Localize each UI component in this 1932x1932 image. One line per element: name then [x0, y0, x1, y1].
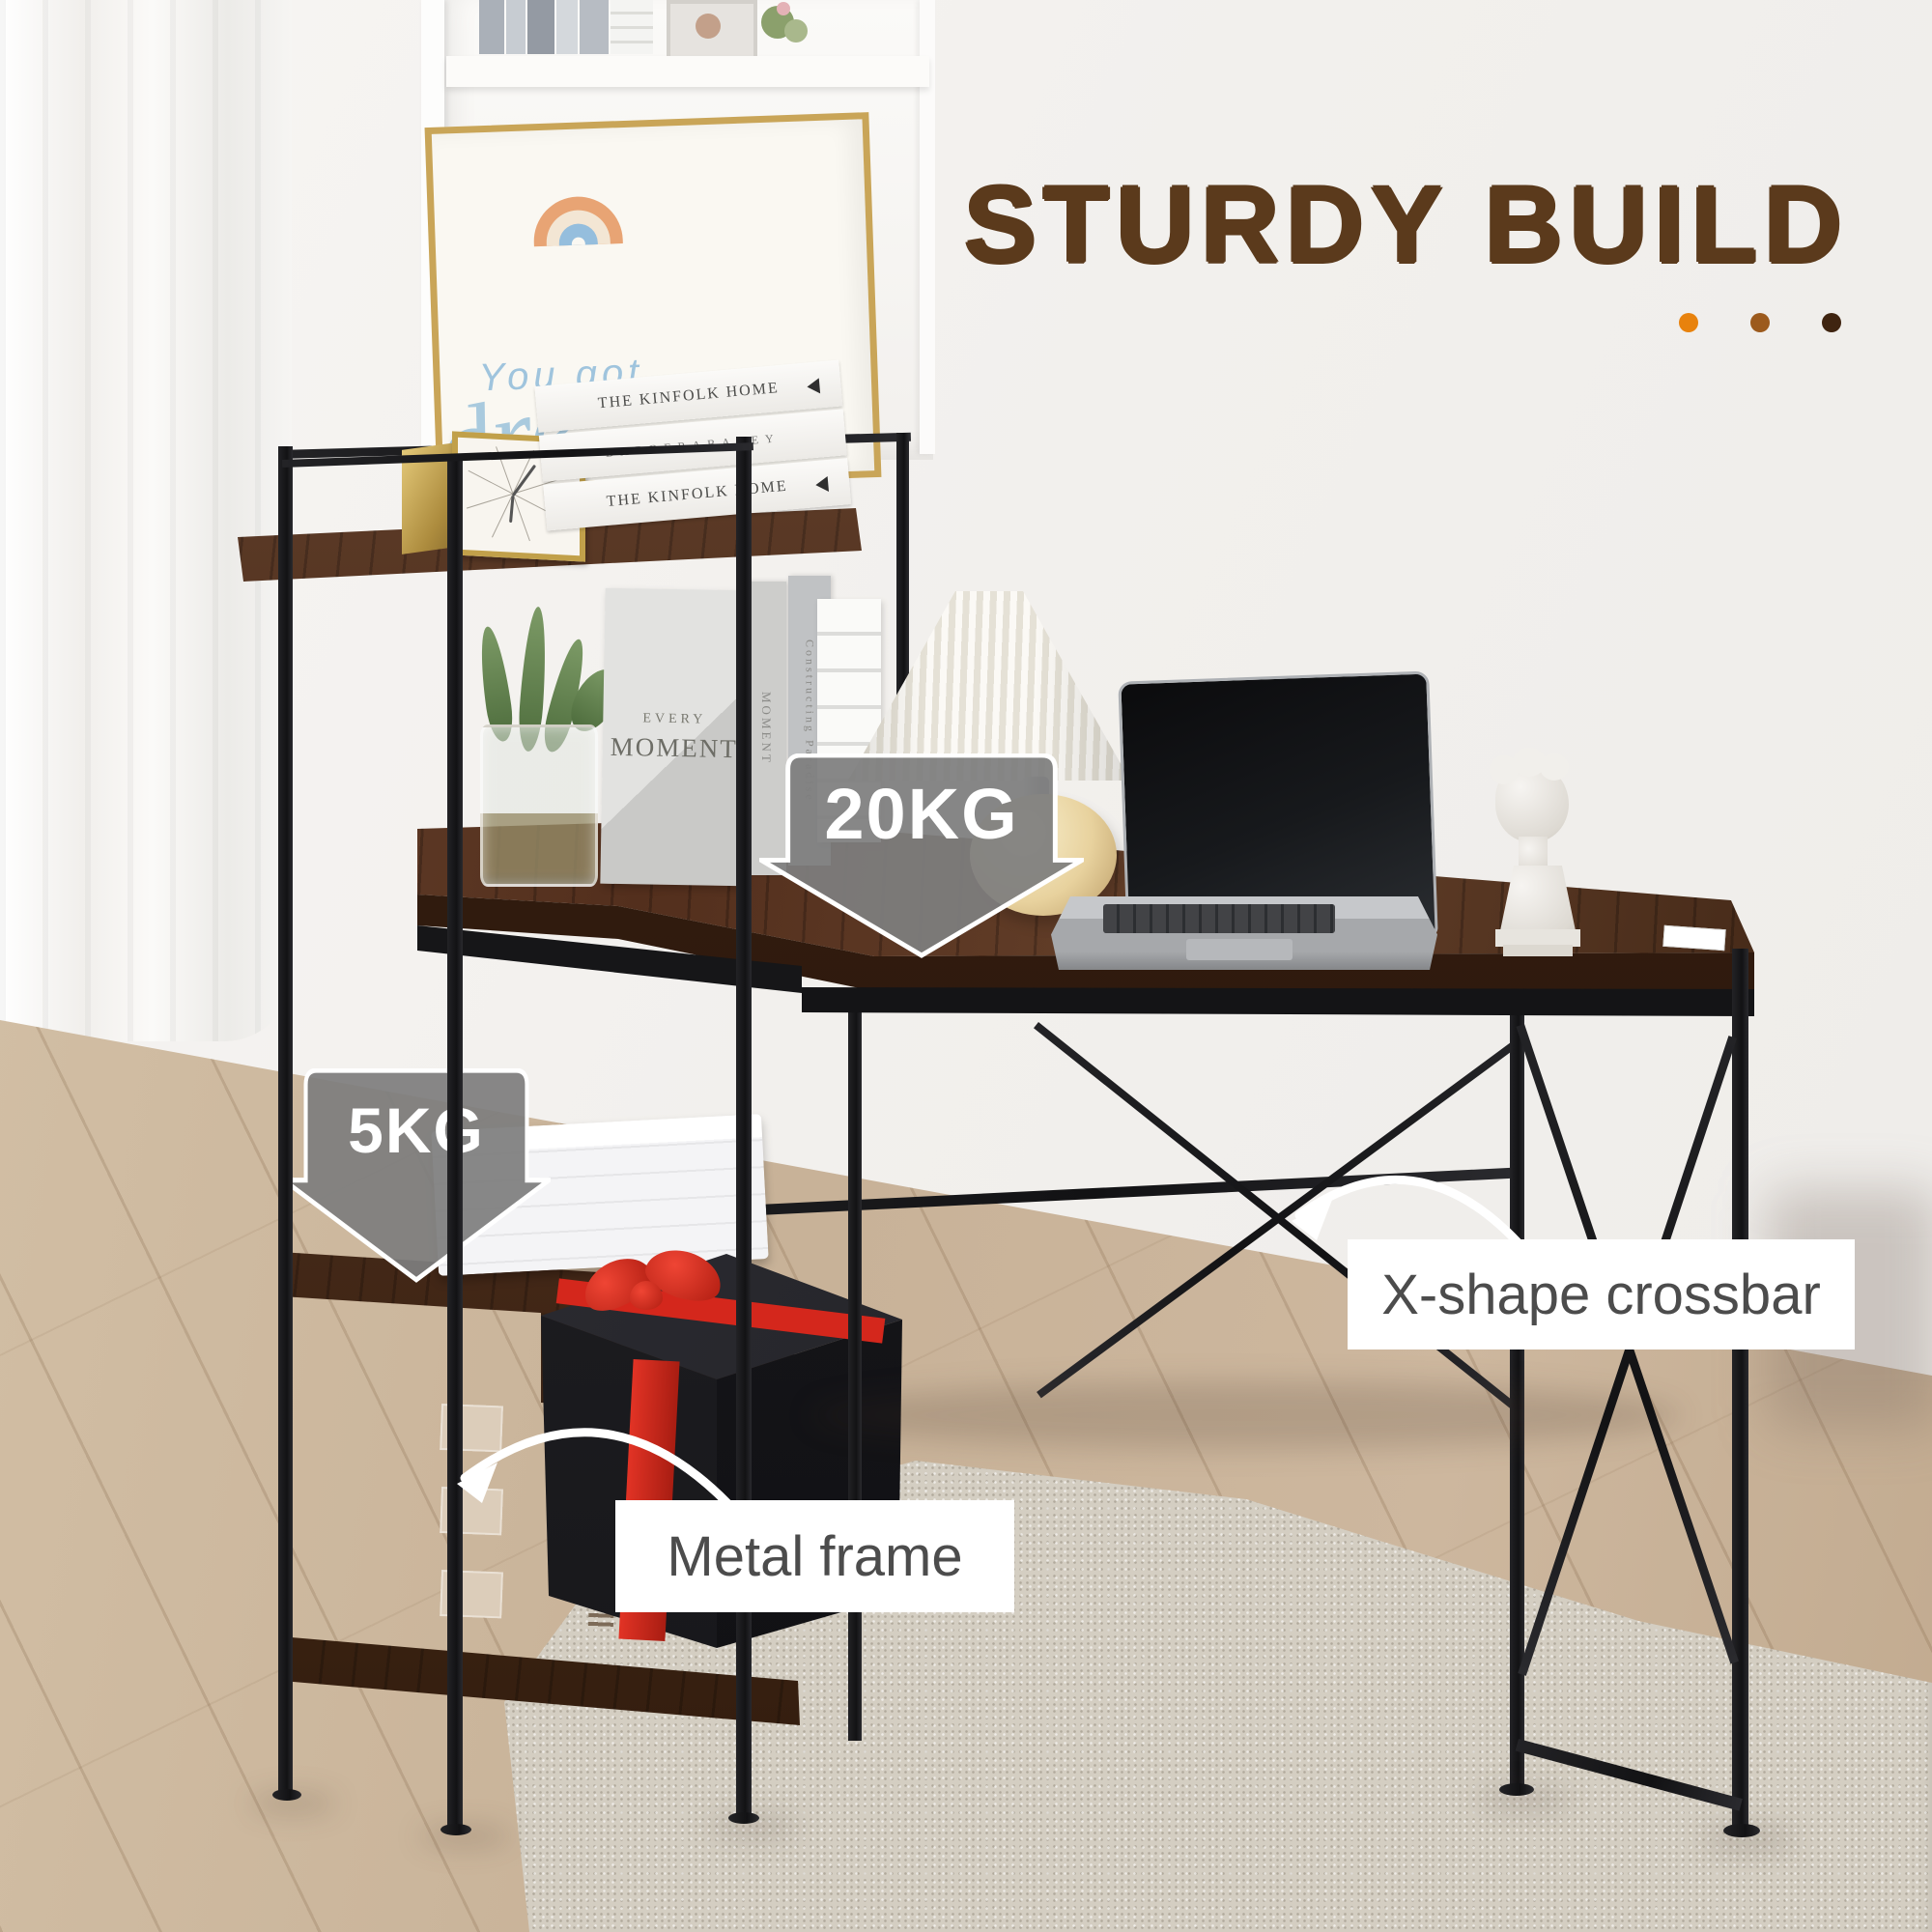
niche-book-spine: [479, 0, 504, 54]
desk-edge-sticker: [1662, 925, 1725, 951]
desk-front-right-leg: [1732, 949, 1748, 1830]
shelf-rear-right-post-lower: [848, 1005, 862, 1741]
niche-book-spine: [556, 0, 578, 54]
niche-plant-icon: [784, 19, 808, 43]
niche-book-spine: [506, 0, 526, 54]
accent-dot-icon: [1822, 313, 1841, 332]
shelf-capacity-value: 5KG: [282, 1094, 551, 1167]
book-title: THE KINFOLK HOME: [606, 478, 788, 511]
niche-flower-icon: [777, 2, 790, 15]
adjustable-foot: [1499, 1783, 1534, 1796]
laptop-keyboard-base: [1051, 896, 1437, 970]
crossbar-callout-label: X-shape crossbar: [1348, 1239, 1855, 1350]
decor-book-cover: EVERY MOMENT: [600, 588, 748, 887]
niche-book-spine: [580, 0, 609, 54]
accent-dot-icon: [1679, 313, 1698, 332]
product-feature-image: You got dre THE KINFO: [0, 0, 1932, 1932]
desk-capacity-value: 20KG: [759, 773, 1084, 855]
book-cover-text: EVERY: [642, 711, 706, 727]
shelf-capacity-arrow-icon: 5KG: [282, 1068, 551, 1283]
adjustable-foot: [728, 1812, 759, 1824]
rainbow-icon: [572, 237, 585, 244]
niche-book-spine: [527, 0, 554, 54]
niche-photo-frame: [667, 0, 757, 60]
book-cover-text: MOMENT: [611, 731, 739, 763]
adjustable-foot: [440, 1824, 471, 1835]
frame-callout-text: Metal frame: [667, 1524, 962, 1589]
adjustable-foot: [272, 1789, 301, 1801]
page-title: STURDY BUILD: [947, 156, 1866, 292]
laptop-trackpad: [1186, 939, 1293, 960]
accent-dot-icon: [1750, 313, 1770, 332]
laptop-keys: [1103, 904, 1335, 933]
adjustable-foot: [1723, 1824, 1760, 1837]
book-title: THE KINFOLK HOME: [597, 380, 780, 412]
shelf-left-post: [278, 446, 293, 1795]
glass-plant-vase: [480, 724, 598, 887]
bust-curls-icon: [1540, 753, 1569, 781]
shelf-front-left-post: [447, 458, 463, 1830]
under-desk-shadow: [811, 1381, 1681, 1449]
bust-plinth: [1503, 945, 1573, 956]
niche-book-stack: [611, 0, 653, 54]
niche-shelf-board: [446, 56, 929, 87]
gift-bow-icon: [630, 1281, 663, 1310]
curved-arrow-icon: [1270, 1140, 1531, 1256]
frame-callout-label: Metal frame: [615, 1500, 1014, 1612]
desk-capacity-arrow-icon: 20KG: [759, 753, 1084, 958]
publisher-logo-icon: [815, 476, 829, 493]
crossbar-callout-text: X-shape crossbar: [1381, 1263, 1821, 1327]
sheer-curtain: [0, 0, 292, 1041]
publisher-logo-icon: [807, 378, 820, 394]
